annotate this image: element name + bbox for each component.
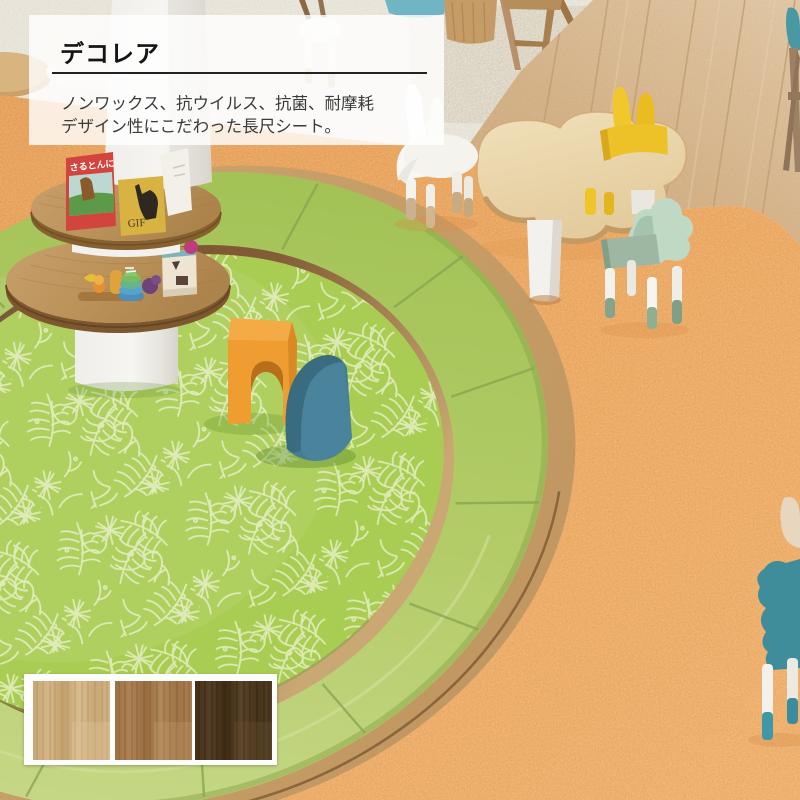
svg-text:GIF: GIF (127, 217, 146, 230)
